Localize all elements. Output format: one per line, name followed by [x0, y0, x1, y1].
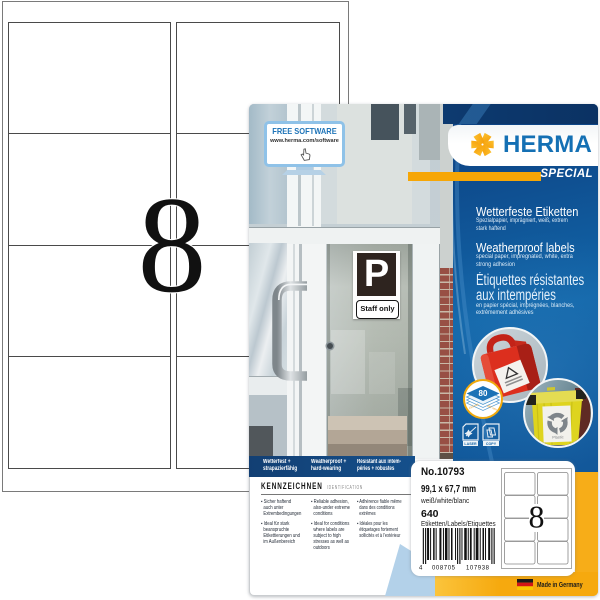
svg-text:297 mm: 297 mm: [487, 404, 498, 412]
svg-text:80: 80: [479, 389, 488, 398]
svg-text:Plastic: Plastic: [552, 435, 563, 439]
svg-text:107938: 107938: [466, 566, 490, 572]
svg-text:008705: 008705: [432, 566, 456, 572]
svg-text:8: 8: [529, 499, 545, 535]
svg-text:LASER: LASER: [464, 442, 477, 446]
svg-text:4: 4: [419, 566, 423, 572]
svg-text:COPY: COPY: [486, 442, 497, 446]
